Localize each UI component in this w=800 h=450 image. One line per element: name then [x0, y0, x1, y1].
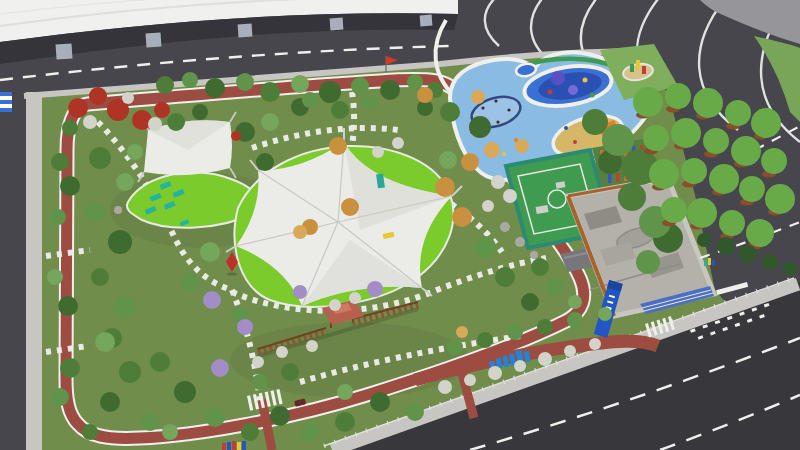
- spray-umbrella: [568, 85, 578, 95]
- play-equipment: [548, 90, 553, 95]
- climbing-frame: [630, 64, 634, 72]
- render-canvas: [0, 0, 800, 450]
- park-render: [0, 0, 800, 450]
- climbing-frame: [636, 60, 640, 69]
- play-equipment: [583, 78, 588, 83]
- climbing-frame: [642, 66, 646, 74]
- play-equipment: [590, 93, 595, 98]
- striped-curb: [0, 92, 12, 112]
- spray-umbrella: [551, 71, 565, 85]
